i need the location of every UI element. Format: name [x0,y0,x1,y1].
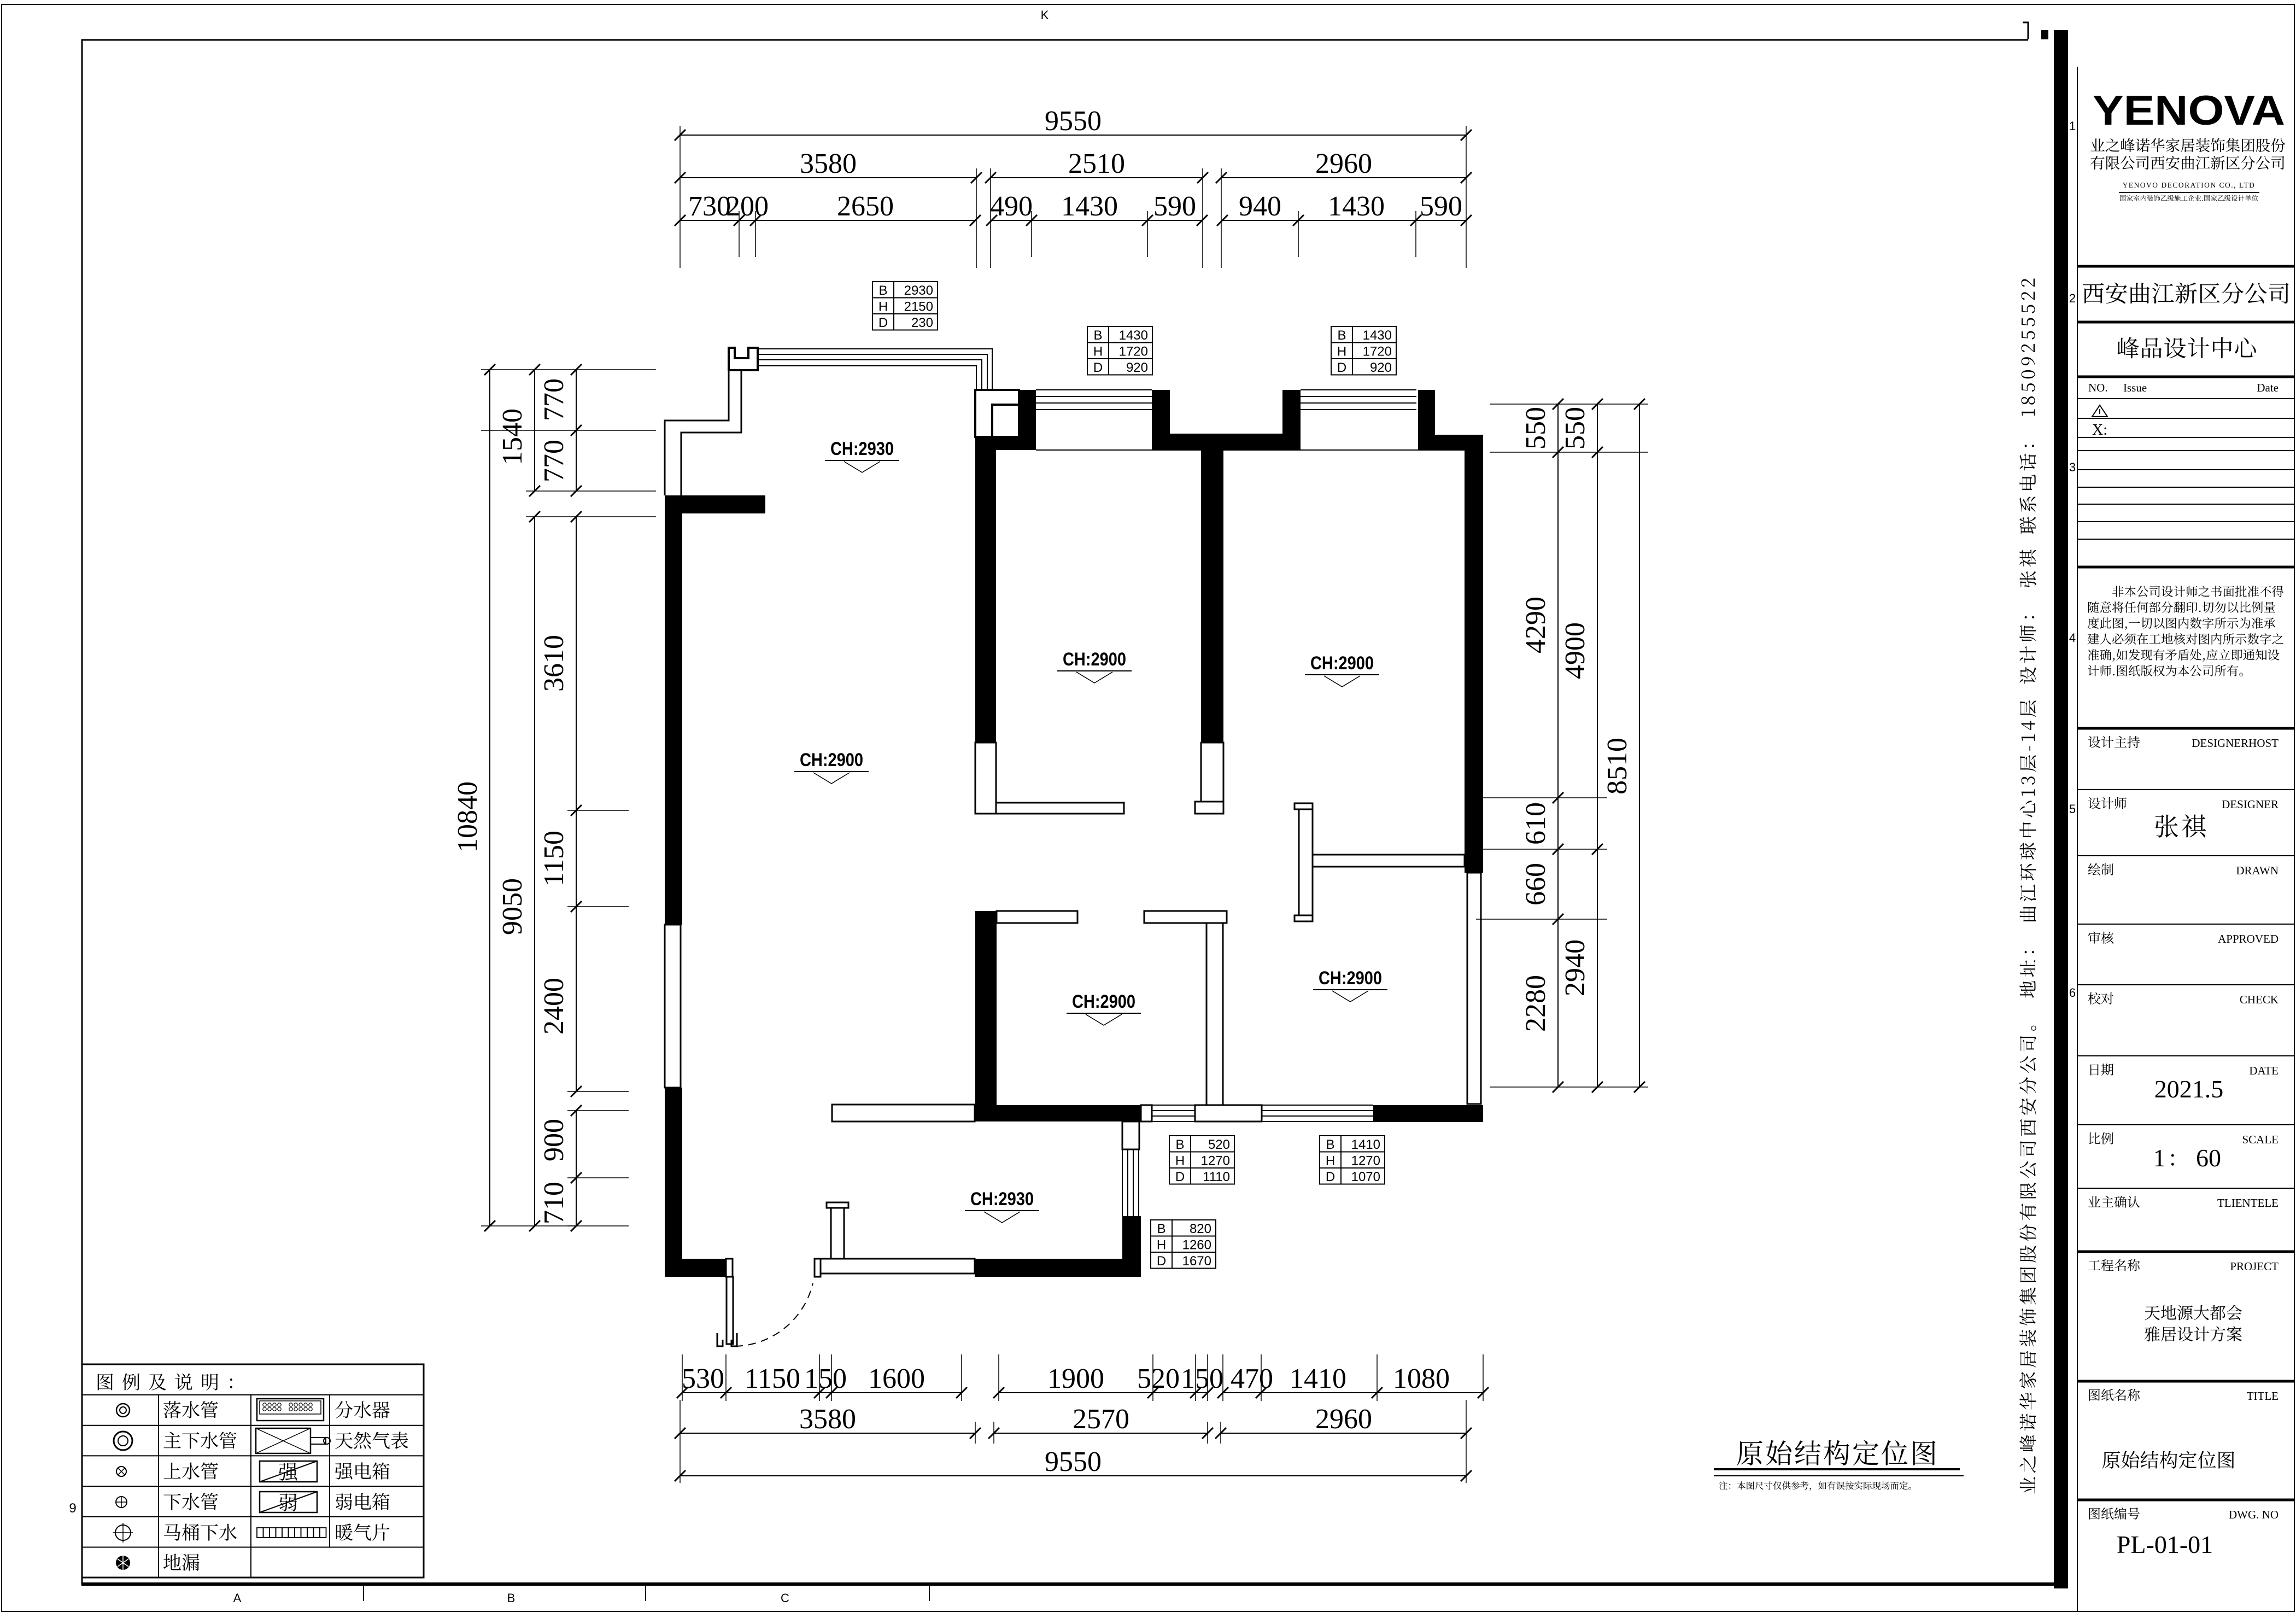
svg-text:550: 550 [1560,407,1591,449]
svg-text:C: C [781,1591,789,1605]
svg-text:1430: 1430 [1061,191,1118,222]
svg-text:2930: 2930 [904,283,933,298]
svg-text:PROJECT: PROJECT [2230,1260,2279,1273]
svg-text:520: 520 [1137,1363,1180,1394]
svg-text:D: D [1175,1170,1185,1184]
svg-text:CH:2900: CH:2900 [1072,991,1135,1012]
svg-text:K: K [1041,8,1049,22]
svg-text:60: 60 [2196,1144,2221,1172]
svg-text:1670: 1670 [1182,1254,1211,1269]
svg-text:550: 550 [1520,407,1551,449]
svg-text:940: 940 [1239,191,1281,222]
svg-text:2570: 2570 [1073,1404,1129,1435]
svg-text:H: H [1326,1153,1335,1168]
svg-text:3: 3 [2069,460,2076,474]
svg-text:1410: 1410 [1290,1363,1346,1394]
svg-text:3580: 3580 [800,148,857,179]
svg-text:APPROVED: APPROVED [2218,932,2279,945]
svg-text:1430: 1430 [1328,191,1385,222]
svg-text:2021.5: 2021.5 [2154,1075,2224,1103]
svg-text:2960: 2960 [1315,1404,1372,1435]
svg-text:NO.: NO. [2088,381,2108,394]
svg-text:DESIGNERHOST: DESIGNERHOST [2192,737,2279,750]
svg-text:1720: 1720 [1363,344,1392,359]
svg-text:1150: 1150 [538,831,570,886]
svg-text:820: 820 [1190,1222,1211,1236]
svg-text:CH:2900: CH:2900 [800,750,863,770]
svg-text:470: 470 [1231,1363,1273,1394]
svg-text:770: 770 [538,440,570,482]
svg-text:9: 9 [69,1501,76,1516]
svg-text:6: 6 [2069,986,2076,1000]
svg-text:B: B [1326,1137,1334,1152]
svg-text:2: 2 [2069,291,2076,305]
svg-text:B: B [878,283,887,298]
svg-text:730: 730 [688,191,731,222]
svg-text:590: 590 [1153,191,1196,222]
svg-text:1720: 1720 [1119,344,1148,359]
svg-text:1110: 1110 [1203,1170,1230,1184]
svg-text:770: 770 [538,378,570,421]
svg-text:4: 4 [2069,631,2076,645]
svg-text:H: H [1157,1237,1166,1252]
svg-text:1270: 1270 [1201,1153,1230,1168]
svg-text:3610: 3610 [538,635,570,692]
svg-text:9550: 9550 [1045,1446,1102,1477]
svg-text:150: 150 [1181,1363,1223,1394]
svg-text:YENOVA: YENOVA [2093,87,2285,134]
svg-text:D: D [1337,360,1346,375]
svg-text:H: H [1175,1153,1185,1168]
svg-text:4900: 4900 [1560,622,1591,679]
svg-text:1430: 1430 [1363,328,1392,343]
svg-text:490: 490 [990,191,1033,222]
svg-text:2960: 2960 [1315,148,1372,179]
svg-text:YENOVO DECORATION CO., LTD: YENOVO DECORATION CO., LTD [2123,181,2256,189]
svg-text:CH:2900: CH:2900 [1310,653,1374,674]
svg-text:SCALE: SCALE [2242,1133,2279,1146]
svg-text:H: H [878,299,888,314]
svg-text:CHECK: CHECK [2240,993,2279,1006]
svg-text:2940: 2940 [1560,939,1591,996]
svg-text:150: 150 [804,1363,847,1394]
svg-text:1: 1 [2153,1144,2166,1172]
svg-text:H: H [1337,344,1346,359]
svg-text:1900: 1900 [1047,1363,1104,1394]
svg-text:TITLE: TITLE [2247,1389,2279,1403]
svg-text:CH:2930: CH:2930 [970,1189,1034,1210]
svg-text:9050: 9050 [497,878,528,935]
svg-text:920: 920 [1370,360,1392,375]
svg-text:2650: 2650 [837,191,894,222]
svg-text:1430: 1430 [1119,328,1148,343]
svg-text:1080: 1080 [1393,1363,1450,1394]
svg-text:1410: 1410 [1351,1137,1380,1152]
svg-text:2510: 2510 [1068,148,1125,179]
svg-text:B: B [1337,328,1346,343]
svg-text:D: D [1157,1254,1166,1269]
svg-text:3580: 3580 [799,1404,856,1435]
svg-text:2280: 2280 [1520,975,1551,1032]
svg-text:520: 520 [1208,1137,1230,1152]
svg-text:B: B [1175,1137,1184,1152]
svg-text:1600: 1600 [868,1363,925,1394]
svg-text:1270: 1270 [1351,1153,1380,1168]
svg-text:H: H [1093,344,1103,359]
svg-text:660: 660 [1520,863,1551,906]
svg-text:5: 5 [2069,802,2076,816]
svg-text:A: A [233,1591,242,1605]
svg-text:1070: 1070 [1351,1170,1380,1184]
svg-text:530: 530 [682,1363,724,1394]
svg-text:2400: 2400 [538,978,570,1035]
svg-text:DRAWN: DRAWN [2236,864,2279,877]
svg-text:D: D [1093,360,1103,375]
svg-text:B: B [1093,328,1102,343]
svg-text:200: 200 [726,191,769,222]
svg-text:9550: 9550 [1045,106,1102,137]
svg-text:900: 900 [538,1119,570,1161]
svg-text:PL-01-01: PL-01-01 [2117,1530,2213,1558]
svg-text:D: D [878,316,888,330]
svg-text:710: 710 [538,1182,570,1224]
svg-text:TLIENTELE: TLIENTELE [2217,1196,2279,1210]
svg-text:8510: 8510 [1602,738,1633,795]
svg-text:1150: 1150 [745,1363,800,1394]
svg-text:10840: 10840 [452,781,483,852]
svg-text:590: 590 [1420,191,1462,222]
svg-text:1: 1 [2069,119,2076,133]
svg-text:DESIGNER: DESIGNER [2222,798,2279,811]
svg-text:B: B [507,1591,516,1605]
svg-text:CH:2900: CH:2900 [1319,968,1382,989]
svg-text:1540: 1540 [497,408,528,465]
svg-text:4290: 4290 [1520,597,1551,653]
svg-text:920: 920 [1126,360,1148,375]
svg-text:230: 230 [911,316,933,330]
svg-text:2150: 2150 [904,299,933,314]
svg-text:DWG. NO: DWG. NO [2229,1508,2279,1521]
svg-text:DATE: DATE [2249,1064,2279,1077]
svg-text:610: 610 [1520,802,1551,845]
svg-text:CH:2900: CH:2900 [1063,649,1126,670]
svg-text:D: D [1326,1170,1335,1184]
svg-text:B: B [1157,1222,1165,1236]
svg-text:Date: Date [2257,381,2279,394]
svg-text:Issue: Issue [2123,381,2147,394]
svg-text:CH:2930: CH:2930 [830,439,894,459]
svg-text:1260: 1260 [1182,1237,1211,1252]
svg-text:X:: X: [2092,422,2107,439]
